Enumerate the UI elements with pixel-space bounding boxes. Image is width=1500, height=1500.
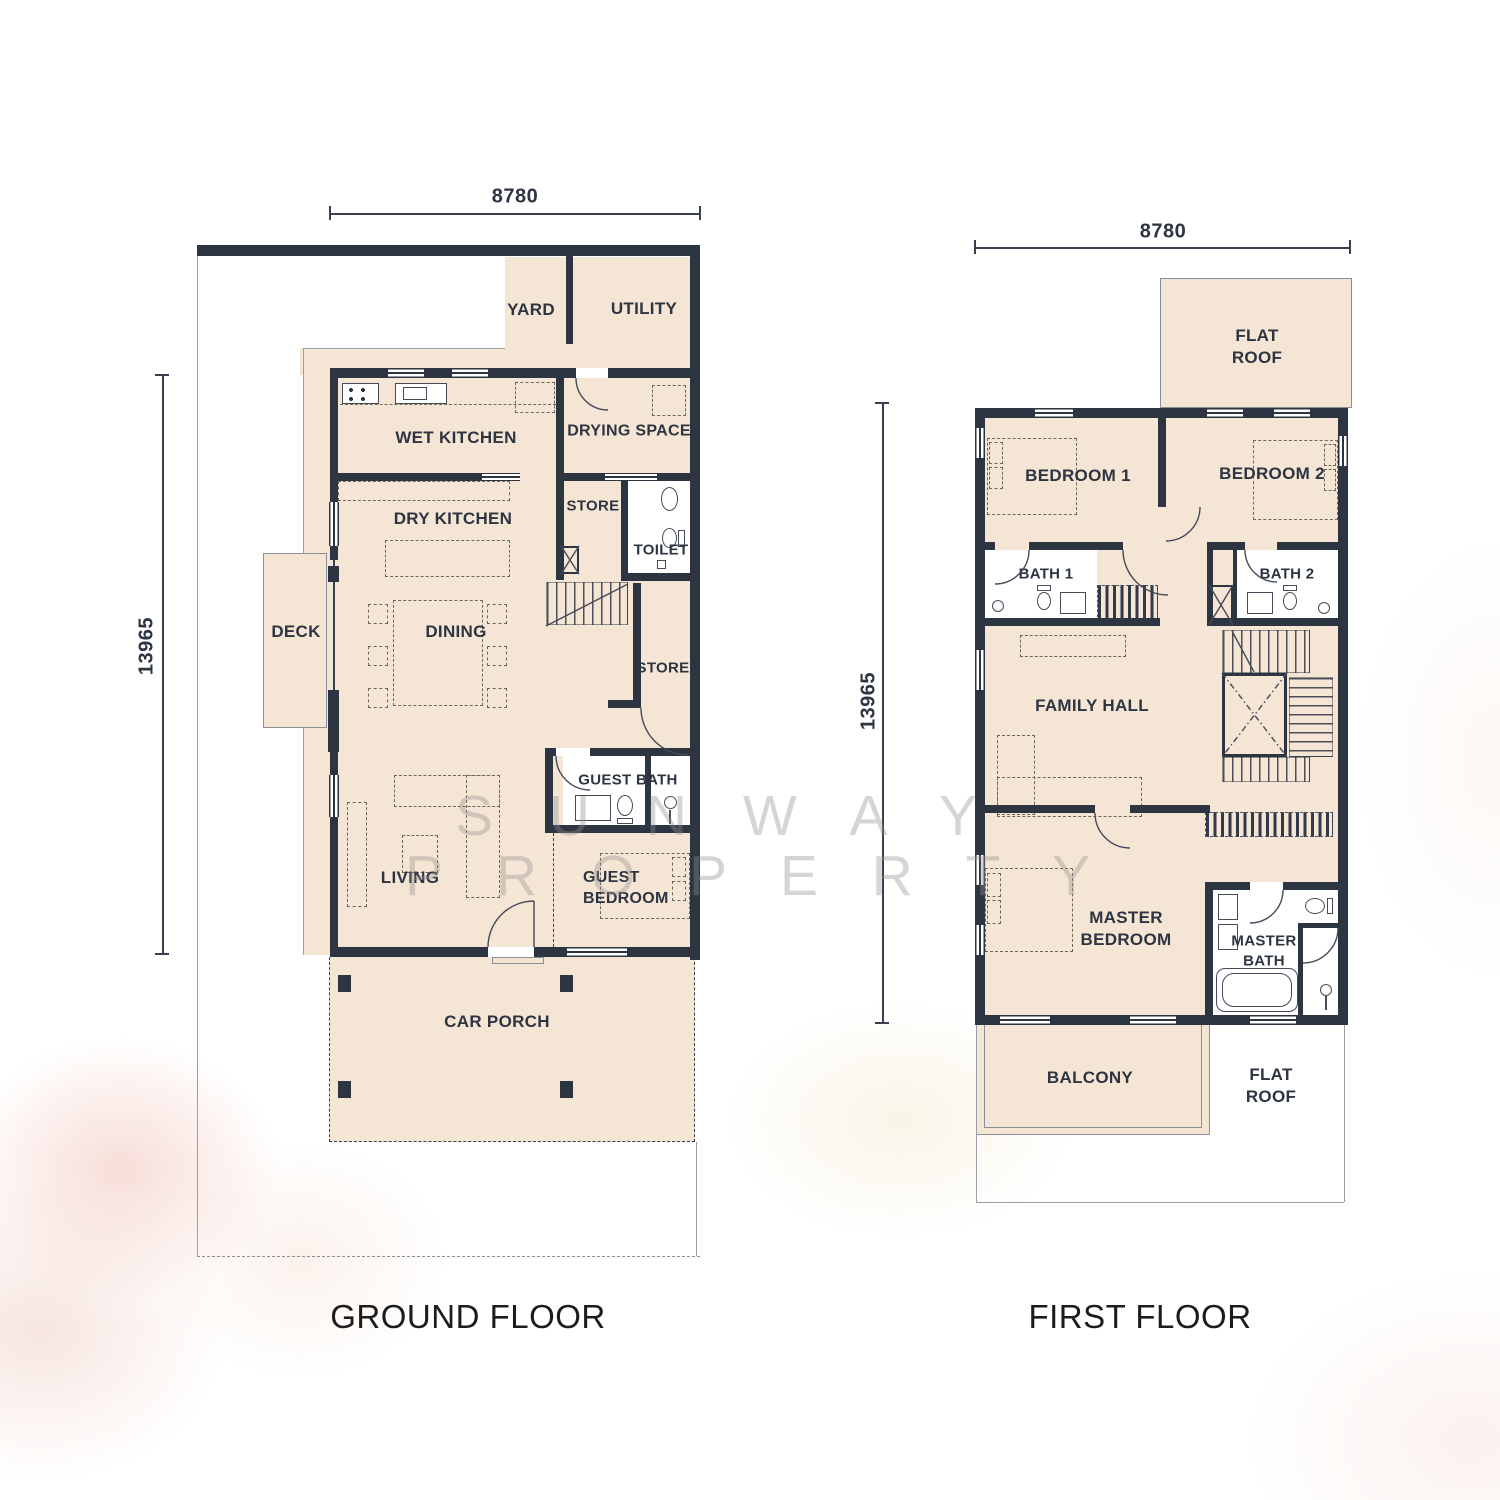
wardrobe xyxy=(1097,585,1158,622)
ground-floor-title: GROUND FLOOR xyxy=(330,1298,606,1336)
pillow xyxy=(989,467,1003,489)
window xyxy=(1000,1015,1050,1025)
stair-flight xyxy=(1289,677,1333,757)
window xyxy=(1338,436,1348,466)
toilet-tank-icon xyxy=(1283,585,1297,591)
shower-head-icon xyxy=(992,600,1004,612)
dimension-height: 13965 xyxy=(858,672,881,730)
dimension-tick xyxy=(875,402,889,404)
dimension-width: 8780 xyxy=(1140,221,1187,244)
toilet-bowl-icon xyxy=(1305,898,1325,914)
tv-console xyxy=(1020,635,1126,657)
dimension-line xyxy=(882,403,884,1023)
bathtub-basin xyxy=(1222,973,1292,1007)
room-label-family-hall: FAMILY HALL xyxy=(1035,695,1149,717)
wardrobe xyxy=(1205,812,1333,837)
toilet-bowl-icon xyxy=(1283,592,1297,610)
wall-segment xyxy=(1298,928,1303,1015)
room-label-bath2: BATH 2 xyxy=(1260,564,1315,584)
room-label-balcony: BALCONY xyxy=(1047,1067,1133,1089)
window xyxy=(1035,408,1073,418)
floor-plan-sheet: YARD UTILITY WET KITCHEN DRYING SPACE DR… xyxy=(0,0,1500,1500)
room-label-bath1: BATH 1 xyxy=(1019,564,1074,584)
first-floor-plan: FLAT ROOF BEDROOM 1 BEDROOM 2 BATH 1 BAT… xyxy=(0,0,1500,1500)
wall-segment xyxy=(1298,923,1340,928)
wall-segment xyxy=(1338,408,1348,1025)
wall-segment xyxy=(1029,542,1123,550)
room-label-flat-roof-bottom: FLAT ROOF xyxy=(1246,1064,1296,1108)
dimension-line xyxy=(975,247,1350,249)
room-label-bedroom2: BEDROOM 2 xyxy=(1219,463,1325,485)
lot-line xyxy=(976,1202,1344,1203)
first-floor-title: FIRST FLOOR xyxy=(1028,1298,1251,1336)
lot-line xyxy=(976,1025,977,1202)
room-label-master-bedroom: MASTER BEDROOM xyxy=(1081,907,1172,951)
dimension-tick xyxy=(875,1022,889,1024)
pillow xyxy=(989,442,1003,464)
window xyxy=(975,428,985,458)
wall-segment xyxy=(1207,550,1213,626)
window xyxy=(975,925,985,955)
room-label-bedroom1: BEDROOM 1 xyxy=(1025,465,1131,487)
toilet-tank-icon xyxy=(1327,898,1333,914)
wall-segment xyxy=(1277,542,1348,550)
pillow xyxy=(1324,469,1336,491)
vanity-icon xyxy=(1060,592,1086,614)
wall-segment xyxy=(975,618,1160,626)
shower-head-icon xyxy=(1318,602,1330,614)
wall-segment xyxy=(1207,618,1348,626)
shower-stand-icon xyxy=(1325,996,1327,1010)
dimension-tick xyxy=(1349,240,1351,254)
window xyxy=(975,650,985,690)
void-box xyxy=(1222,673,1287,757)
toilet-tank-icon xyxy=(1037,585,1051,591)
watermark-row1: S U N W A Y xyxy=(455,783,997,849)
stair-flight xyxy=(1222,757,1310,782)
vanity-icon xyxy=(1218,894,1238,920)
shower-head-icon xyxy=(1320,984,1332,996)
door-opening xyxy=(1250,882,1283,890)
window xyxy=(1250,1015,1296,1025)
wall-segment xyxy=(1158,408,1166,507)
room-label-flat-roof-top: FLAT ROOF xyxy=(1232,325,1282,369)
wall-segment xyxy=(1205,882,1213,1023)
toilet-bowl-icon xyxy=(1037,592,1051,610)
dimension-tick xyxy=(974,240,976,254)
lot-line xyxy=(1344,1025,1345,1202)
wall-segment xyxy=(1207,542,1245,550)
window xyxy=(1274,408,1310,418)
watermark-row2: P R O P E R T Y xyxy=(405,843,1109,909)
wall-segment xyxy=(1130,805,1210,813)
stair-flight xyxy=(1222,630,1310,673)
wall-segment xyxy=(975,542,995,550)
room-label-master-bath: MASTER BATH xyxy=(1231,932,1296,971)
wall-segment xyxy=(1233,550,1237,626)
window xyxy=(1130,1015,1176,1025)
vanity-icon xyxy=(1247,592,1273,614)
window xyxy=(1207,408,1243,418)
pillow xyxy=(1324,444,1336,466)
